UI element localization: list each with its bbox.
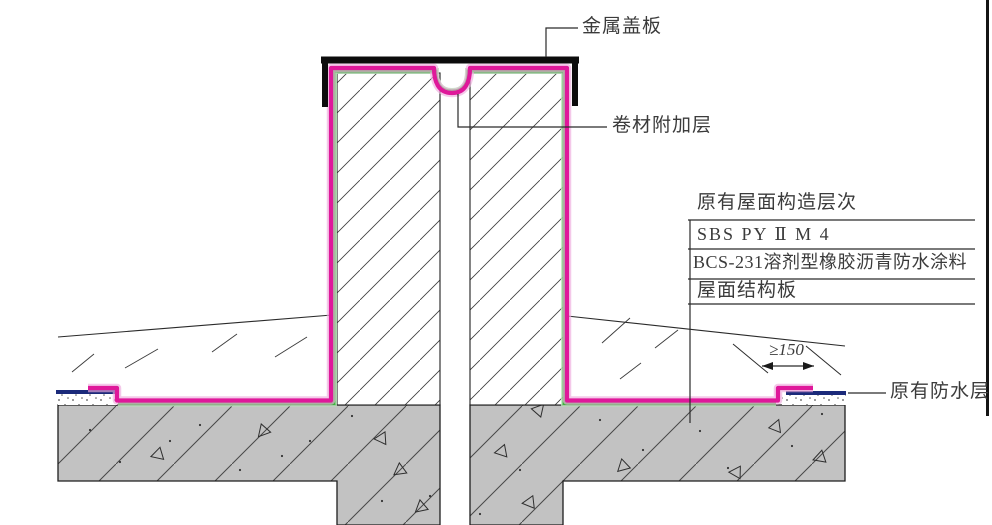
concrete-slab-left xyxy=(58,405,440,525)
label-membrane-additional-layer: 卷材附加层 xyxy=(612,116,712,136)
roof-slope-line-left xyxy=(58,315,332,337)
table-row-bcs-coating: BCS-231溶剂型橡胶沥青防水涂料 xyxy=(693,253,967,272)
label-existing-waterproof-layer: 原有防水层 xyxy=(890,382,990,402)
joint-wall-right xyxy=(470,73,563,405)
table-header-existing-roof-layers: 原有屋面构造层次 xyxy=(697,193,857,213)
existing-screed-band-left xyxy=(58,394,117,405)
dimension-label: ≥150 xyxy=(769,341,804,359)
label-metal-cover-plate: 金属盖板 xyxy=(582,17,662,37)
existing-screed-band-right xyxy=(782,395,846,405)
construction-detail-diagram: 金属盖板 卷材附加层 原有屋面构造层次 SBS PY Ⅱ M 4 BCS-231… xyxy=(0,0,992,525)
leader-metal-cover xyxy=(546,28,578,57)
table-row-sbs-membrane: SBS PY Ⅱ M 4 xyxy=(697,225,831,244)
joint-wall-left xyxy=(337,73,440,405)
concrete-slab-right xyxy=(470,405,845,525)
table-row-roof-deck: 屋面结构板 xyxy=(697,281,797,301)
